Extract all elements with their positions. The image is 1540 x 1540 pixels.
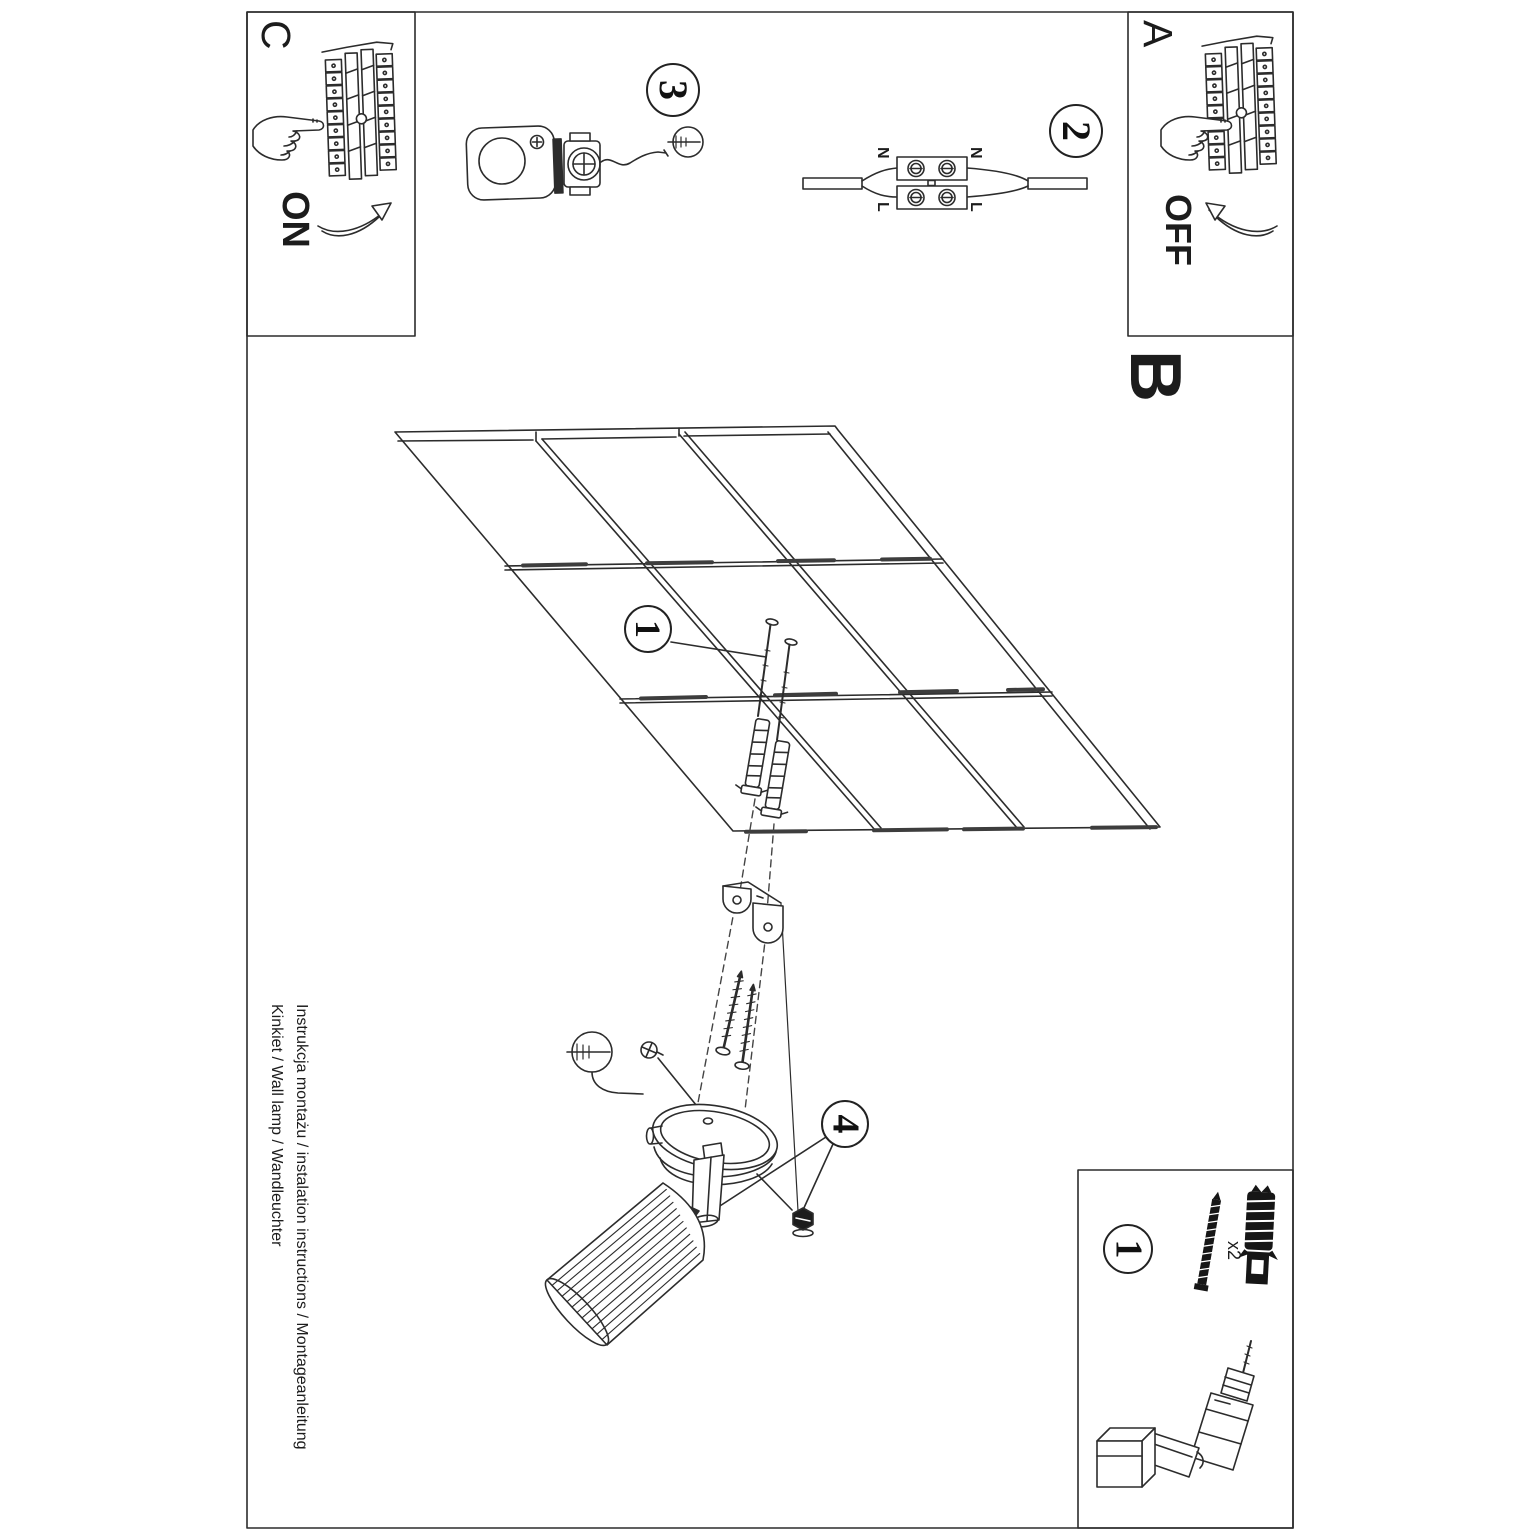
parts-badge-1: 1 [1103,1224,1153,1274]
footer-line-2: Kinkiet / Wall lamp / Wandleuchter [268,1004,284,1246]
step-badge-3: 3 [646,63,700,117]
diagram-artwork [0,0,1540,1540]
cable-right [1028,178,1087,189]
section-label-b: B [1119,350,1191,402]
neutral-label-right: N [967,147,983,159]
screw-quantity-label: x2 [1225,1241,1243,1260]
step-badge-4: 4 [821,1100,869,1148]
section-label-c: C [255,20,296,50]
on-label: ON [276,191,314,248]
live-label-right: L [967,202,983,212]
step-badge-2: 2 [1049,104,1103,158]
footer-line-1: Instrukcja montażu / instalation instruc… [293,1004,309,1450]
section-label-a: A [1137,20,1178,47]
cable-left [803,178,862,189]
off-label: OFF [1160,194,1196,266]
step-badge-1: 1 [624,605,672,653]
instruction-sheet: C A B ON OFF N N L L x2 Instrukcja monta… [0,0,1540,1540]
live-label-left: L [874,202,890,212]
neutral-label-left: N [874,147,890,159]
